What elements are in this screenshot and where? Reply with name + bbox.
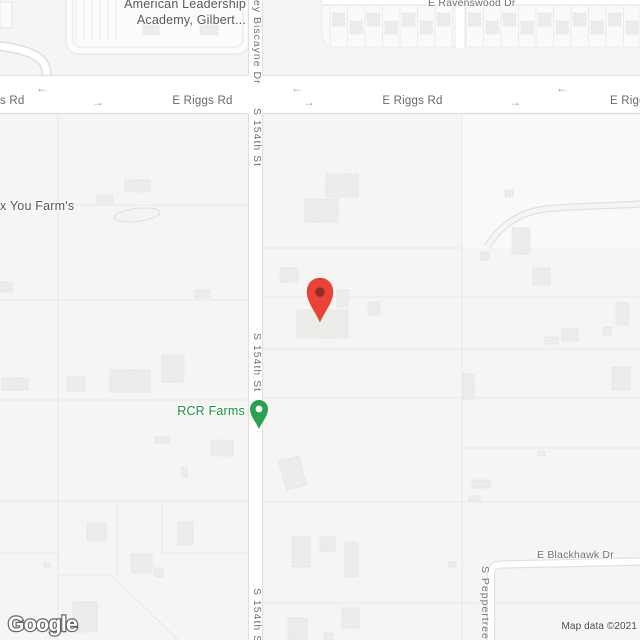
map-attribution: Map data ©2021 [562,621,638,632]
house-footprint [438,13,451,26]
building-footprint [368,302,380,315]
house-footprint [368,13,381,26]
building-footprint [342,608,359,628]
building-footprint [612,367,630,390]
one-way-arrow-icon: ← [556,82,568,94]
building-footprint [195,290,210,298]
building-footprint [131,554,152,573]
building-footprint [97,195,113,205]
building-footprint [44,563,50,568]
building-footprint [616,303,629,325]
google-logo-text[interactable]: Google [8,613,77,636]
building-footprint [469,496,480,501]
building-footprint [324,633,333,640]
corner-lot [0,2,12,28]
road-label-s154-mid: S 154th St [251,333,263,392]
road-label-ravenswood: E Ravenswood Dr [428,0,516,9]
red-pin-dot [315,287,325,297]
house-footprint [333,13,346,26]
building-footprint [305,199,338,222]
building-footprint [292,537,310,567]
house-footprint [469,13,482,26]
road-label-riggs-right-cut: E Riggs [610,95,640,107]
road-label-biscayne-cut: ey Biscayne Dr [251,0,263,85]
house-footprint [521,21,534,34]
house-footprint [350,21,363,34]
building-footprint [162,355,184,382]
map-canvas[interactable]: American Leadership Academy, Gilbert... … [0,0,640,640]
field-parcel [462,115,640,248]
road-label-peppertree: S Peppertree D [479,566,491,640]
one-way-arrow-icon: ← [36,82,48,94]
building-footprint [288,618,307,640]
house-footprint [609,13,622,26]
building-footprint [182,468,187,478]
road-label-s154-upper: S 154th St [251,108,263,167]
road-label-riggs-east: E Riggs Rd [370,95,455,107]
house-footprint [403,13,416,26]
building-footprint [545,337,558,344]
building-footprint [449,562,456,568]
road-label-s154-lower: S 154th St [251,588,263,640]
building-footprint [603,327,611,336]
building-footprint [178,522,193,545]
building-footprint [2,378,28,390]
school-label-line1: American Leadership [58,0,246,13]
building-footprint [538,451,545,456]
green-pin-dot [256,406,263,413]
one-way-arrow-icon: → [509,96,521,108]
building-footprint [0,282,12,292]
poi-label-farm-cut[interactable]: x You Farm's [0,199,74,215]
house-footprint [574,13,587,26]
house-footprint [626,21,639,34]
building-footprint [125,180,150,192]
one-way-arrow-icon: → [303,96,315,108]
building-footprint [533,268,550,285]
poi-label-rcr-farms[interactable]: RCR Farms [140,404,245,418]
building-footprint [463,374,474,399]
house-footprint [556,21,569,34]
house-footprint [504,13,517,26]
building-footprint [154,568,163,577]
building-footprint [512,228,530,254]
house-footprint [420,21,433,34]
building-footprint [472,480,490,488]
school-label-line2: Academy, Gilbert... [58,13,246,29]
one-way-arrow-icon: ← [291,82,303,94]
house-footprint [539,13,552,26]
building-footprint [110,370,150,392]
building-footprint [155,437,170,443]
building-footprint [280,268,298,282]
road-label-riggs-west-cut: s Rd [0,95,24,107]
house-footprint [591,21,604,34]
s154-road [248,0,263,640]
road-label-blackhawk: E Blackhawk Dr [537,549,614,561]
google-logo[interactable]: Google [4,608,90,638]
building-footprint [480,252,489,260]
road-label-riggs-center: E Riggs Rd [160,95,245,107]
building-footprint [87,523,106,541]
house-footprint [385,21,398,34]
building-footprint [505,190,513,197]
building-footprint [562,329,578,341]
building-footprint [345,542,358,577]
one-way-arrow-icon: → [92,96,104,108]
building-footprint [211,440,233,456]
building-footprint [326,174,358,197]
building-footprint [67,377,85,391]
building-footprint [337,290,348,307]
school-label[interactable]: American Leadership Academy, Gilbert... [58,0,246,28]
house-footprint [486,21,499,34]
building-footprint [320,537,335,552]
